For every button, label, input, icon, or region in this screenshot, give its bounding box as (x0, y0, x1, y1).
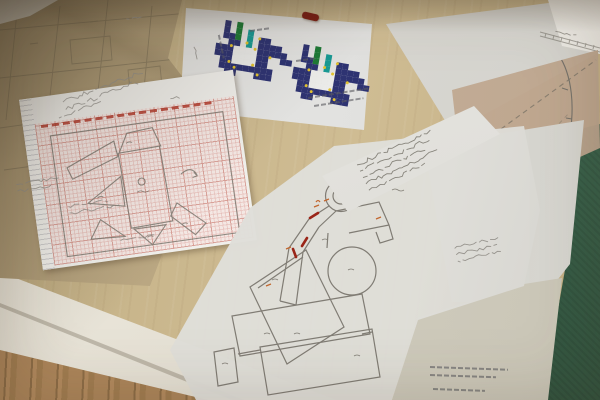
handwriting-line (555, 31, 576, 37)
handwriting-line (170, 96, 182, 100)
pixel-cell (270, 45, 277, 52)
pixel-cell (236, 28, 243, 35)
pixel-cell (255, 61, 262, 68)
kraft-pattern-sheet (0, 0, 600, 400)
pixel-cell (260, 68, 267, 75)
handwriting-line (58, 100, 101, 119)
pixel-cell (335, 68, 342, 75)
handwriting-line (456, 243, 498, 256)
pixel-cell (265, 38, 272, 45)
pixel-cell (358, 78, 365, 85)
table-edge-groove (0, 0, 600, 400)
pixel-cell (331, 92, 338, 99)
handwriting-line (16, 177, 59, 186)
drawn-ruler (538, 18, 600, 58)
wood-floor (0, 0, 600, 400)
yellow-marker-dot (310, 90, 313, 93)
pixel-cell (336, 62, 343, 69)
microtext-line (296, 57, 316, 61)
microtext-line (433, 388, 485, 391)
pixel-cell (339, 81, 346, 88)
pixel-cell (302, 81, 309, 88)
yellow-marker-dot (307, 68, 310, 71)
pixel-cell (231, 57, 238, 64)
handwriting-block (118, 230, 171, 250)
yellow-marker-dot (304, 84, 307, 87)
handwriting-block (66, 195, 128, 223)
pixel-cell (269, 51, 276, 58)
pixel-cell (259, 37, 266, 44)
pixel-cell (279, 59, 286, 66)
pixel-cell (245, 47, 252, 54)
pixel-cell (238, 52, 245, 59)
pixel-cell (314, 83, 321, 90)
pixel-cell (301, 86, 308, 93)
pixel-cell (336, 99, 343, 106)
pixel-cell (249, 60, 256, 67)
pixel-cell (295, 85, 302, 92)
pixel-cell (347, 70, 354, 77)
yellow-marker-dot (251, 64, 254, 67)
handwriting-line (356, 129, 431, 167)
pixel-cell (280, 53, 287, 60)
pencil-layout-drawing (0, 0, 240, 300)
pixel-cell (293, 67, 300, 74)
handwriting-line (365, 149, 438, 186)
microtext-line (430, 374, 496, 378)
pixel-cell (264, 44, 271, 51)
yellow-marker-dot (346, 81, 349, 84)
pixel-cell (297, 80, 304, 87)
yellow-marker-dot (232, 66, 235, 69)
pixel-cell (248, 30, 255, 37)
pixel-cell (315, 46, 322, 53)
pixel-cell (328, 73, 335, 80)
pixel-cell (244, 53, 251, 60)
handwriting-block (354, 127, 449, 201)
pixel-cell (242, 65, 249, 72)
pixel-cell (225, 20, 232, 27)
pixel-cell (314, 52, 321, 59)
pixel-cell (265, 75, 272, 82)
handwriting-block (168, 93, 189, 107)
pixel-pattern-printout (0, 0, 600, 400)
pixel-cell (266, 69, 273, 76)
pixel-cell (292, 73, 299, 80)
yellow-marker-dot (323, 66, 326, 69)
pixel-cell (223, 68, 230, 75)
pixel-cell (298, 74, 305, 81)
pixel-cell (300, 92, 307, 99)
pixel-cell (346, 76, 353, 83)
paper-corner-top-left (0, 0, 600, 400)
pattern-piece-markings (450, 48, 600, 180)
grid-printed-header (41, 101, 213, 128)
pixel-cell (342, 100, 349, 107)
pixel-cell (307, 57, 314, 64)
pixel-cell (250, 54, 257, 61)
handwriting-line (193, 47, 199, 60)
pixel-cell (253, 73, 260, 80)
pixel-cell (259, 74, 266, 81)
pixel-cell (225, 56, 232, 63)
corner-shadow (0, 0, 600, 400)
pixel-cell (258, 43, 265, 50)
red-pen-cap (301, 11, 319, 22)
pixel-cell (325, 54, 332, 61)
pixel-cell (363, 85, 370, 92)
pixel-cell (214, 49, 221, 56)
handwriting-line (359, 136, 432, 173)
pixel-cell (316, 71, 323, 78)
pixel-cell (299, 68, 306, 75)
handwriting-block (452, 234, 507, 271)
pixel-cell (257, 49, 264, 56)
pixel-cell (246, 41, 253, 48)
handwriting-line (62, 70, 143, 104)
yellow-marker-dot (258, 38, 261, 41)
yellow-marker-dot (333, 98, 336, 101)
pixel-pattern-2 (283, 42, 375, 110)
handwriting-line (126, 16, 144, 19)
handwriting-block (14, 174, 64, 200)
yellow-marker-dot (269, 56, 272, 59)
yellow-marker-dot (328, 88, 331, 91)
pixel-cell (232, 51, 239, 58)
pixel-cell (332, 86, 339, 93)
pixel-cell (226, 50, 233, 57)
pencil-drawing-object (210, 158, 510, 400)
handwriting-line (65, 80, 138, 112)
millimeter-grid (35, 96, 254, 266)
handwriting-line (362, 147, 425, 179)
pixel-cell (254, 67, 261, 74)
pixel-cell (313, 58, 320, 65)
pixel-cell (325, 91, 332, 98)
pixel-cell (353, 71, 360, 78)
pixel-cell (224, 62, 231, 69)
pixel-cell (322, 72, 329, 79)
pixel-cell (229, 33, 236, 40)
pixel-cell (218, 61, 225, 68)
pixel-cell (261, 62, 268, 69)
pixel-cell (237, 58, 244, 65)
handwriting-line (17, 184, 54, 192)
pixel-cell (256, 55, 263, 62)
pixel-cell (340, 75, 347, 82)
yellow-marker-dot (256, 73, 259, 76)
pixel-cell (337, 93, 344, 100)
yellow-marker-dot (230, 43, 233, 46)
pixel-cell (234, 40, 241, 47)
pixel-cell (305, 69, 312, 76)
pixel-cell (219, 55, 226, 62)
sewing-pattern-piece (0, 0, 600, 400)
pixel-cell (306, 63, 313, 70)
handwriting-block (186, 44, 204, 68)
microtext-line (250, 27, 270, 31)
pixel-cell (334, 74, 341, 81)
pixel-pattern-1 (206, 18, 297, 84)
pixel-cell (251, 48, 258, 55)
tracing-sheet-upper-right (0, 0, 600, 400)
yellow-marker-dot (331, 72, 334, 75)
pixel-cell (357, 84, 364, 91)
yellow-marker-dot (245, 42, 248, 45)
pixel-cell (220, 50, 227, 57)
table-surface (0, 0, 600, 400)
pixel-cell (227, 45, 234, 52)
pixel-cell (215, 43, 222, 50)
pixel-cell (310, 70, 317, 77)
pixel-cell (319, 90, 326, 97)
handwriting-block (56, 98, 108, 129)
pixel-cell (239, 46, 246, 53)
pixel-cell (352, 77, 359, 84)
pixel-cell (321, 78, 328, 85)
pixel-cell (302, 50, 309, 57)
pixel-cell (236, 64, 243, 71)
handwriting-line (120, 234, 154, 241)
photo-vignette (0, 0, 600, 400)
handwriting-block (60, 67, 154, 121)
green-cutting-mat (0, 0, 600, 400)
tracing-sheet-large (0, 0, 600, 400)
pixel-cell (228, 39, 235, 46)
pixel-cell (247, 35, 254, 42)
pixel-cell (309, 76, 316, 83)
pixel-cell (263, 50, 270, 57)
pixel-cell (338, 87, 345, 94)
pixel-cell (274, 52, 281, 59)
pixel-cell (324, 60, 331, 67)
yellow-marker-dot (227, 60, 230, 63)
yellow-marker-dot (336, 62, 339, 65)
microtext-line (314, 97, 364, 106)
microtext-line (430, 366, 508, 370)
pixel-cell (343, 94, 350, 101)
pixel-cell (285, 60, 292, 67)
pixel-cell (315, 77, 322, 84)
pixel-cell (308, 82, 315, 89)
pixel-cell (221, 44, 228, 51)
folded-notes-strip (0, 0, 600, 400)
handwriting-line (69, 204, 119, 215)
pixel-cell (326, 85, 333, 92)
pixel-cell (311, 64, 318, 71)
microtext-line (308, 87, 369, 98)
table-edge (0, 0, 600, 400)
pixel-cell (330, 98, 337, 105)
pixel-cell (333, 80, 340, 87)
pixel-cell (303, 75, 310, 82)
photo-worktable (0, 0, 600, 400)
pixel-cell (224, 26, 231, 33)
tracing-sheet-mid-right (0, 0, 600, 400)
pixel-cell (342, 63, 349, 70)
pixel-cell (243, 59, 250, 66)
white-sheet-corner (0, 0, 600, 400)
pixel-cell (327, 79, 334, 86)
handwriting-line (458, 249, 501, 262)
pixel-cell (313, 89, 320, 96)
handwriting-block (552, 28, 588, 46)
handwriting-line (368, 162, 426, 191)
handwriting-line (454, 236, 498, 250)
pixel-cell (233, 45, 240, 52)
pixel-cell (303, 44, 310, 51)
graph-paper-sheet (19, 70, 257, 270)
graph-paper-margin-strip (19, 98, 55, 270)
pixel-cell (275, 46, 282, 53)
pixel-cell (323, 66, 330, 73)
pixel-cell (320, 84, 327, 91)
pixel-cell (262, 56, 269, 63)
handwriting-line (68, 199, 110, 209)
pixel-cell (341, 69, 348, 76)
pixel-cell (235, 34, 242, 41)
pixel-cell (237, 22, 244, 29)
pixel-cell (223, 32, 230, 39)
microtext-line (218, 35, 225, 59)
handwriting-block (124, 13, 151, 27)
yellow-marker-dot (254, 47, 257, 50)
printed-sheet-bottom-right (0, 0, 600, 400)
pixel-cell (229, 69, 236, 76)
pixel-cell (307, 88, 314, 95)
pencil-net-drawing (19, 70, 257, 270)
pixel-cell (301, 56, 308, 63)
pixel-cell (230, 63, 237, 70)
pixel-cell (306, 93, 313, 100)
pixel-cell (248, 66, 255, 73)
